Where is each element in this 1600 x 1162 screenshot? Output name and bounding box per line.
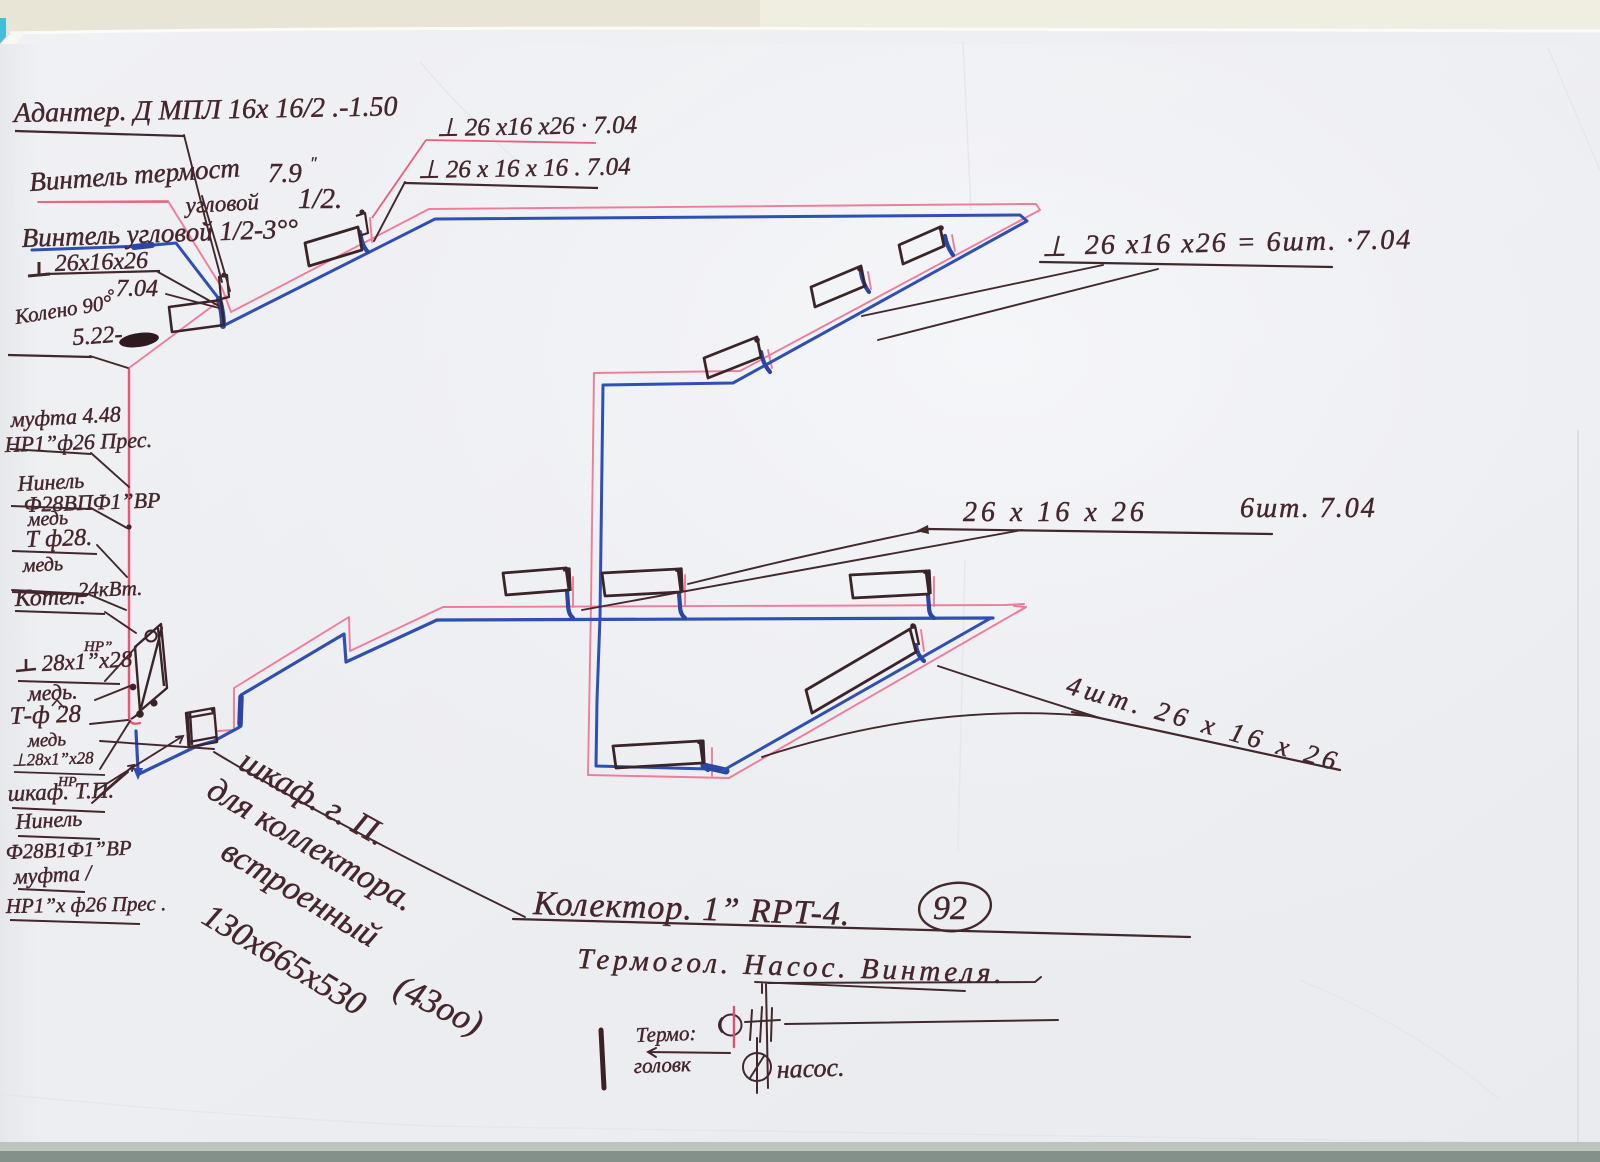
svg-text:⊥ 26 х 16 х 16 . 7.04: ⊥ 26 х 16 х 16 . 7.04: [418, 153, 631, 184]
svg-text:⊥28х1”х28: ⊥28х1”х28: [11, 748, 94, 770]
svg-text:головк: головк: [633, 1052, 691, 1078]
svg-text:⊥: ⊥: [1042, 232, 1067, 263]
svg-text:Котел.: Котел.: [13, 584, 86, 612]
svg-text:⊥ 26 х16 х26 · 7.04: ⊥ 26 х16 х26 · 7.04: [437, 112, 638, 142]
svg-text:насос.: насос.: [776, 1053, 845, 1084]
svg-text:24кВт.: 24кВт.: [77, 576, 142, 602]
svg-text:Т-ф 28: Т-ф 28: [9, 701, 82, 730]
svg-text:угловой: угловой: [183, 189, 260, 218]
svg-text:Термо:: Термо:: [635, 1021, 696, 1047]
svg-text:92: 92: [933, 890, 967, 927]
svg-text:7.04: 7.04: [116, 276, 158, 302]
svg-text:26 х 16 х 26: 26 х 16 х 26: [963, 497, 1148, 528]
svg-text:медь: медь: [21, 553, 63, 577]
svg-text:Ф28В1Ф1”ВР: Ф28В1Ф1”ВР: [5, 836, 132, 864]
svg-text:муфта /: муфта /: [12, 860, 94, 889]
svg-text:шкаф. Т.П.: шкаф. Т.П.: [7, 777, 114, 806]
svg-text:Нинель: Нинель: [14, 806, 83, 835]
svg-text:1/2.: 1/2.: [298, 183, 342, 215]
svg-text:26 х16 х26 = 6шт. ·7.04: 26 х16 х26 = 6шт. ·7.04: [1085, 224, 1413, 261]
svg-text:6шт. 7.04: 6шт. 7.04: [1240, 493, 1377, 524]
svg-text:НР1”х ф26 Прес .: НР1”х ф26 Прес .: [5, 891, 167, 918]
svg-text:5.22-: 5.22-: [72, 322, 124, 351]
svg-text:Т ф28.: Т ф28.: [25, 525, 92, 553]
svg-text:″: ″: [310, 155, 317, 172]
svg-text:28х1”х28: 28х1”х28: [41, 646, 133, 676]
